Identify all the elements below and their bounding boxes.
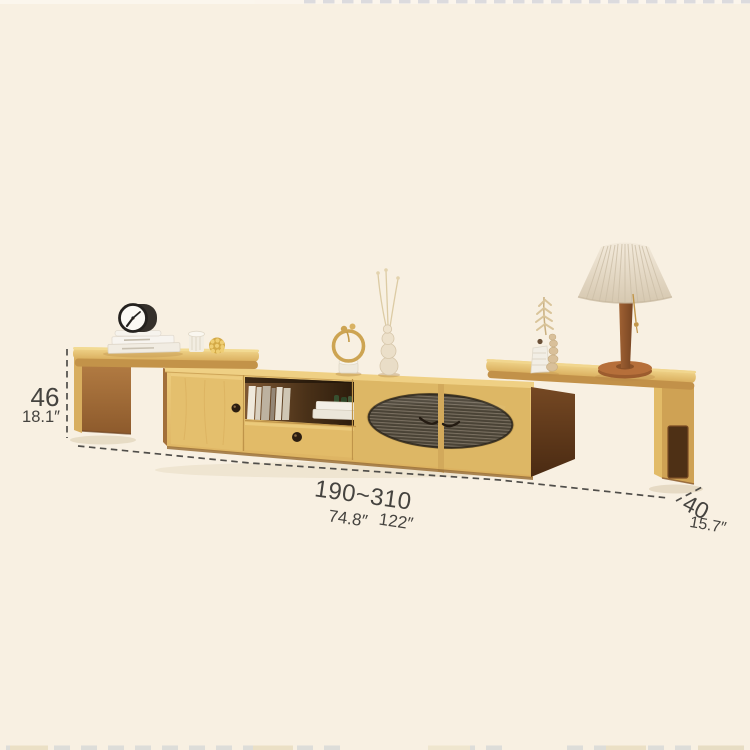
tv-stand-dimension-illustration: 46 18.1″ 190~310 74.8″ 122″ 40 15.7″ [0, 0, 750, 750]
cabinet-door-left [171, 373, 242, 451]
ribbed-cup [189, 331, 205, 352]
right-extension-leg [654, 380, 694, 484]
open-shelf [245, 377, 358, 426]
watermark-remnant-bottom [6, 745, 744, 750]
door-knob [232, 404, 241, 413]
left-extension-leg [74, 357, 131, 434]
height-value-inch: 18.1″ [22, 408, 60, 426]
leg-inner-recess [668, 426, 688, 478]
shelf-books [247, 386, 291, 420]
fluted-glass-doors [354, 380, 530, 475]
glass-door-divider [438, 384, 444, 473]
woven-ball-ornament [209, 338, 225, 354]
watermark-remnant-top [0, 0, 750, 4]
product-image: 46 18.1″ 190~310 74.8″ 122″ 40 15.7″ [0, 0, 750, 750]
drawer-knob [292, 432, 302, 442]
book-stack [103, 335, 183, 357]
shelf-white-book-stack [313, 401, 359, 420]
